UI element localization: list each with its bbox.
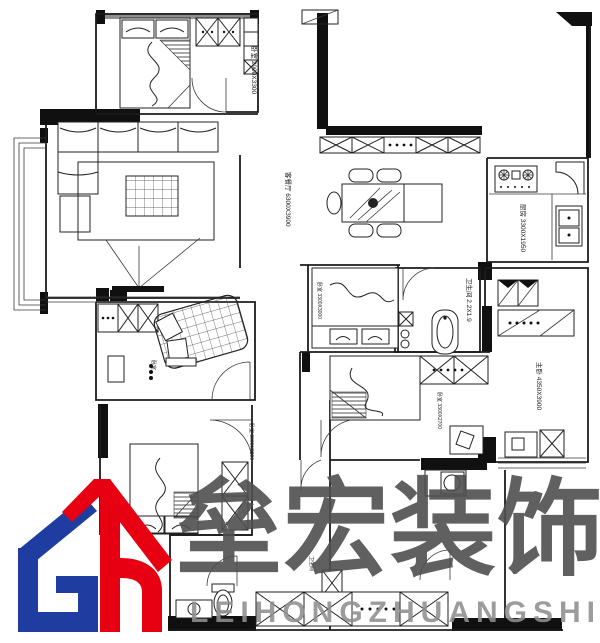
watermark-brand-cn: 垒宏装饰 [176, 474, 600, 585]
brand-logo [10, 470, 180, 640]
screenshot-root: { "watermark": { "brand_cn": "垒宏装饰", "br… [0, 0, 600, 643]
room-label: 卧室 [150, 360, 157, 370]
room-label: 卧室 3300X3000 [316, 282, 323, 319]
dining-area [327, 169, 442, 237]
chair [327, 192, 341, 214]
bedroom-top-left [120, 18, 258, 112]
door-arc [210, 420, 252, 462]
floor-plan-image: 卧室 2900X3300 客餐厅 6300X3900 厨房 3300X1950 … [0, 0, 600, 643]
room-label: 卧室 3300X2700 [436, 392, 443, 429]
door-arc [403, 268, 435, 300]
living-room [58, 122, 218, 292]
watermark-brand-en: LEIHONGZHUANGSHI [190, 596, 600, 630]
room-label: 主卧 4350X3900 [535, 362, 544, 410]
door-arc [192, 78, 226, 112]
chair [349, 224, 373, 237]
desk [505, 432, 537, 457]
chair [349, 169, 373, 182]
kitchen [489, 162, 586, 260]
sideboard [404, 184, 442, 222]
chair [377, 169, 401, 182]
room-label: 厨房 3300X1950 [519, 204, 528, 252]
bedroom-mid-left [98, 293, 250, 400]
room-label: 卧室 3000X3300 [248, 423, 255, 460]
room-label: 卫生间 2.2X1.9 [465, 278, 474, 322]
bedroom-center-top [312, 268, 398, 348]
room-label: 客餐厅 6300X3900 [284, 172, 293, 227]
bed [312, 268, 398, 348]
balcony-cabinet-band [320, 137, 480, 153]
dresser [450, 426, 483, 454]
table-centerpiece [368, 198, 378, 208]
tv-screen [112, 286, 164, 292]
door-arc [212, 362, 250, 400]
bathroom-main [399, 268, 458, 354]
room-label: 卧室 2900X3300 [250, 46, 259, 94]
chair [377, 224, 401, 237]
logo-letter-g [18, 496, 98, 632]
door-arc [321, 420, 351, 457]
